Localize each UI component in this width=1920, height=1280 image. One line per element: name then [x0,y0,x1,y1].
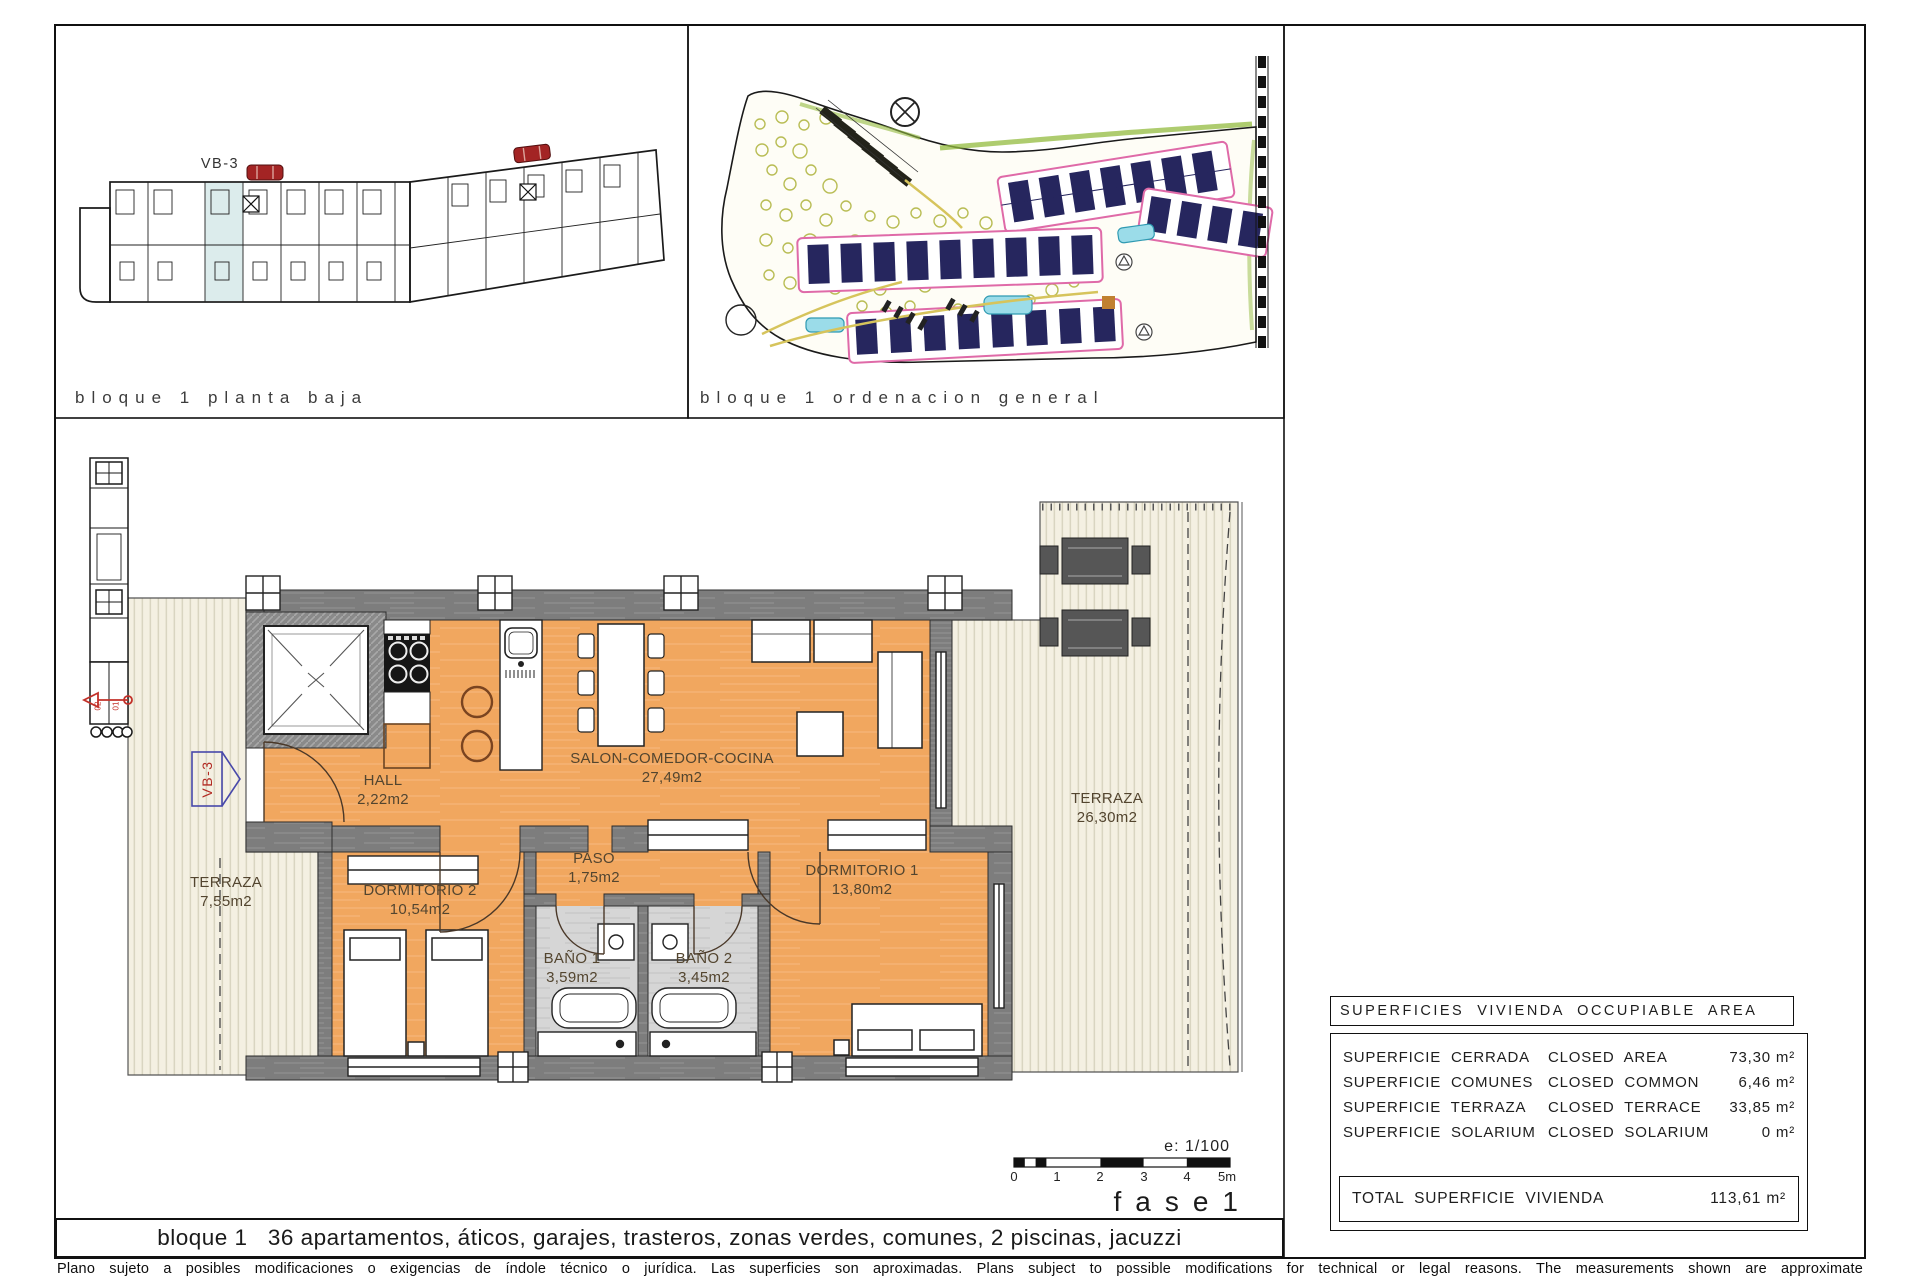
scale-ratio: e: 1/100 [1164,1138,1230,1156]
room-label-salon: SALON-COMEDOR-COCINA 27,49m2 [570,749,774,787]
road-edge [1256,56,1268,348]
core-level-label: 01 [112,702,121,711]
panel-site-caption: bloque 1 ordenacion general [700,388,1105,408]
room-label-terraza-left: TERRAZA 7,55m2 [190,873,262,911]
sheet-title: bloque 1 36 apartamentos, áticos, garaje… [55,1218,1284,1258]
scale-tick: 4 [1183,1169,1190,1184]
scale-tick: 3 [1140,1169,1147,1184]
room-label-bano1: BAÑO 1 3,59m2 [544,949,601,987]
compass-icon [891,98,919,126]
areas-table: SUPERFICIES VIVIENDA OCCUPIABLE AREA SUP… [1330,996,1810,1231]
elevator-shaft [246,612,386,748]
scale-tick: 1 [1053,1169,1060,1184]
areas-table-title: SUPERFICIES VIVIENDA OCCUPIABLE AREA [1330,996,1794,1026]
unit-tag-label: VB-3 [199,760,215,797]
room-label-hall: HALL 2,22m2 [357,771,409,809]
room-label-terraza-right: TERRAZA 26,30m2 [1071,789,1143,827]
panel-floor-drawing [80,144,664,302]
stair-core [90,458,132,737]
room-label-paso: PASO 1,75m2 [568,849,620,887]
scale-tick: 5m [1218,1169,1236,1184]
table-row: SUPERFICIE TERRAZA CLOSED TERRACE 33,85 … [1331,1095,1807,1120]
architectural-plan-sheet: { "sheet": { "panel_floor": { "caption":… [0,0,1920,1280]
core-level-label: 02 [94,702,103,711]
dining-set [578,624,664,746]
table-row: SUPERFICIE SOLARIUM CLOSED SOLARIUM 0 m² [1331,1120,1807,1145]
panel-unit-code: VB-3 [201,156,239,172]
phase-label: fase1 [1114,1186,1253,1218]
areas-table-body: SUPERFICIE CERRADA CLOSED AREA 73,30 m² … [1330,1033,1808,1231]
areas-table-total: TOTAL SUPERFICIE VIVIENDA 113,61 m² [1339,1176,1799,1222]
dorm1-bed [834,1004,982,1056]
scale-bar [1014,1158,1230,1167]
car-icon [247,144,551,180]
legal-disclaimer: Plano sujeto a posibles modificaciones o… [57,1261,1863,1277]
scale-tick: 0 [1010,1169,1017,1184]
room-label-dormitorio2: DORMITORIO 2 10,54m2 [363,881,476,919]
room-label-dormitorio1: DORMITORIO 1 13,80m2 [805,861,918,899]
panel-floor-caption: bloque 1 planta baja [75,388,368,408]
table-row: SUPERFICIE COMUNES CLOSED COMMON 6,46 m² [1331,1070,1807,1095]
panel-site-drawing [722,56,1273,363]
scale-tick: 2 [1096,1169,1103,1184]
room-label-bano2: BAÑO 2 3,45m2 [676,949,733,987]
table-row: SUPERFICIE CERRADA CLOSED AREA 73,30 m² [1331,1045,1807,1070]
